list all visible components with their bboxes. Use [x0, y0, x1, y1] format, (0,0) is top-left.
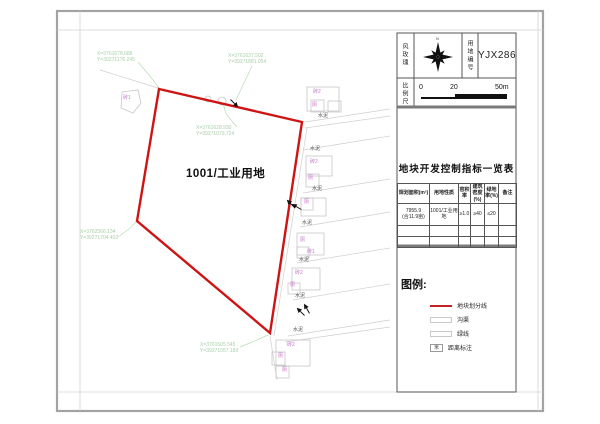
indicator-table-cell: 1001/工业用地 [430, 203, 459, 225]
legend-symbol-redline [430, 305, 452, 307]
distance-arrow-head [302, 303, 309, 310]
road-line [300, 212, 390, 227]
indicator-table-cell: 7955.9 (合11.9亩) [398, 203, 430, 225]
indicator-table-header: 容积率 [459, 184, 471, 204]
indicator-table-cell [398, 236, 430, 247]
map-tiny-label: 砖2 [287, 343, 295, 348]
map-tiny-label: 水泥 [293, 328, 303, 333]
north-label: N [436, 36, 439, 41]
legend-title: 图例: [401, 276, 516, 292]
map-tiny-label: 厕 [278, 354, 283, 359]
indicator-table-cell [485, 236, 499, 247]
map-tiny-label: 厕 [290, 283, 295, 288]
small-structure-outline [121, 90, 141, 113]
legend-item-label: 距离标注 [448, 343, 472, 352]
coordinate-note: X=3762566.134 Y=39271704.402 [80, 229, 118, 241]
scale-tick-50: 50m [495, 84, 509, 91]
legend: 图例: 地块划分线沟渠绿线米距离标注 [397, 272, 516, 358]
parcel-label: 1001/工业用地 [186, 165, 265, 181]
map-tiny-label: 砖2 [313, 90, 321, 95]
coordinate-note: X=3761628.930 Y=39271073.724 [196, 125, 234, 137]
indicator-table-header: 绿地率(%) [485, 184, 499, 204]
scale-bar: 0 20 50m [416, 80, 516, 106]
road-line [293, 284, 390, 300]
indicator-table-cell [499, 225, 517, 236]
indicator-table-title: 地块开发控制指标一览表 [397, 161, 516, 175]
coordinate-note: X=3761505.545 Y=39271057.189 [200, 342, 238, 354]
indicator-table-cell: ≤20 [485, 203, 499, 225]
coord-leader-line [118, 222, 136, 237]
indicator-table-header: 备注 [499, 184, 517, 204]
indicator-table-cell [430, 236, 459, 247]
indicator-table-cell [459, 225, 471, 236]
indicator-table-cell [471, 236, 485, 247]
map-tiny-label: 水泥 [318, 114, 328, 119]
coord-leader-line [240, 335, 268, 347]
legend-item-label: 绿线 [457, 329, 469, 338]
road-line [288, 320, 390, 336]
legend-item: 地块划分线 [430, 302, 516, 309]
legend-item: 沟渠 [430, 316, 516, 323]
map-tiny-label: 厕 [312, 103, 317, 108]
indicator-table-row: 7955.9 (合11.9亩)1001/工业用地≥1.0≥40≤20 [398, 203, 517, 225]
coord-leader-line [138, 62, 159, 88]
distance-arrow [302, 303, 312, 315]
indicator-table-row [398, 236, 517, 247]
indicator-table-row [398, 225, 517, 236]
map-tiny-label: 砖2 [310, 160, 318, 165]
plot-number-label: 用地编号 [465, 40, 474, 72]
plan-sheet: 砖2厕水泥水泥砖2厕水泥厕水泥厕砖1水泥砖2厕水泥水泥砖2厕厕砖1X=37616… [0, 0, 600, 424]
road-line [274, 128, 307, 336]
legend-item: 绿线 [430, 330, 516, 337]
road-line [100, 70, 158, 88]
legend-symbol-rect [430, 317, 452, 323]
indicator-table-cell [471, 225, 485, 236]
distance-arrow-tail [296, 207, 301, 210]
indicator-table-header: 用地性质 [430, 184, 459, 204]
indicator-table-cell: ≥1.0 [459, 203, 471, 225]
map-tiny-label: 水泥 [312, 187, 322, 192]
indicator-table-header: 建筑密度(%) [471, 184, 485, 204]
coordinate-note: X=3761637.502 Y=39271881.054 [228, 53, 266, 65]
map-tiny-label: 水泥 [295, 294, 305, 299]
legend-item-label: 地块划分线 [457, 301, 487, 310]
coord-leader-line [236, 66, 252, 100]
map-tiny-label: 砖1 [123, 96, 131, 101]
wind-rose-icon [423, 42, 453, 72]
indicator-table-cell [398, 225, 430, 236]
windrose-label: 风玫瑰 [400, 43, 409, 67]
map-graphics [100, 62, 390, 380]
map-tiny-label: 厕 [282, 368, 287, 373]
map-tiny-label: 砖2 [295, 271, 303, 276]
indicator-table-header: 规划面积(m²) [398, 184, 430, 204]
map-tiny-label: 厕 [300, 238, 305, 243]
map-tiny-label: 砖1 [307, 250, 315, 255]
indicator-table-cell [485, 225, 499, 236]
indicator-table-cell: ≥40 [471, 203, 485, 225]
indicator-table-cell [430, 225, 459, 236]
scale-label: 比例尺 [400, 82, 409, 106]
legend-symbol-distbox: 米 [430, 344, 443, 352]
scale-tick-0: 0 [419, 84, 423, 91]
legend-symbol-rect [430, 331, 452, 337]
legend-item-label: 沟渠 [457, 315, 469, 324]
indicator-table: 规划面积(m²)用地性质容积率建筑密度(%)绿地率(%)备注 7955.9 (合… [397, 183, 517, 248]
map-tiny-label: 水泥 [299, 258, 309, 263]
scale-bar-segment-left [421, 97, 455, 99]
coordinate-note: X=3761678.688 Y=39271176.245 [97, 51, 135, 63]
scale-bar-segment-right [455, 94, 507, 99]
distance-arrow-tail [307, 308, 310, 313]
map-tiny-label: 厕 [308, 176, 313, 181]
map-tiny-label: 厕 [304, 200, 309, 205]
distance-arrow-tail [230, 99, 234, 103]
scale-tick-20: 20 [450, 84, 458, 91]
indicator-table-cell [499, 236, 517, 247]
map-tiny-label: 水泥 [310, 147, 320, 152]
map-tiny-label: 水泥 [302, 221, 312, 226]
indicator-table-cell [499, 203, 517, 225]
distance-arrow-tail [300, 311, 304, 315]
plot-number-value: YJX286 [478, 50, 516, 61]
indicator-table-cell [459, 236, 471, 247]
legend-item: 米距离标注 [430, 344, 516, 351]
